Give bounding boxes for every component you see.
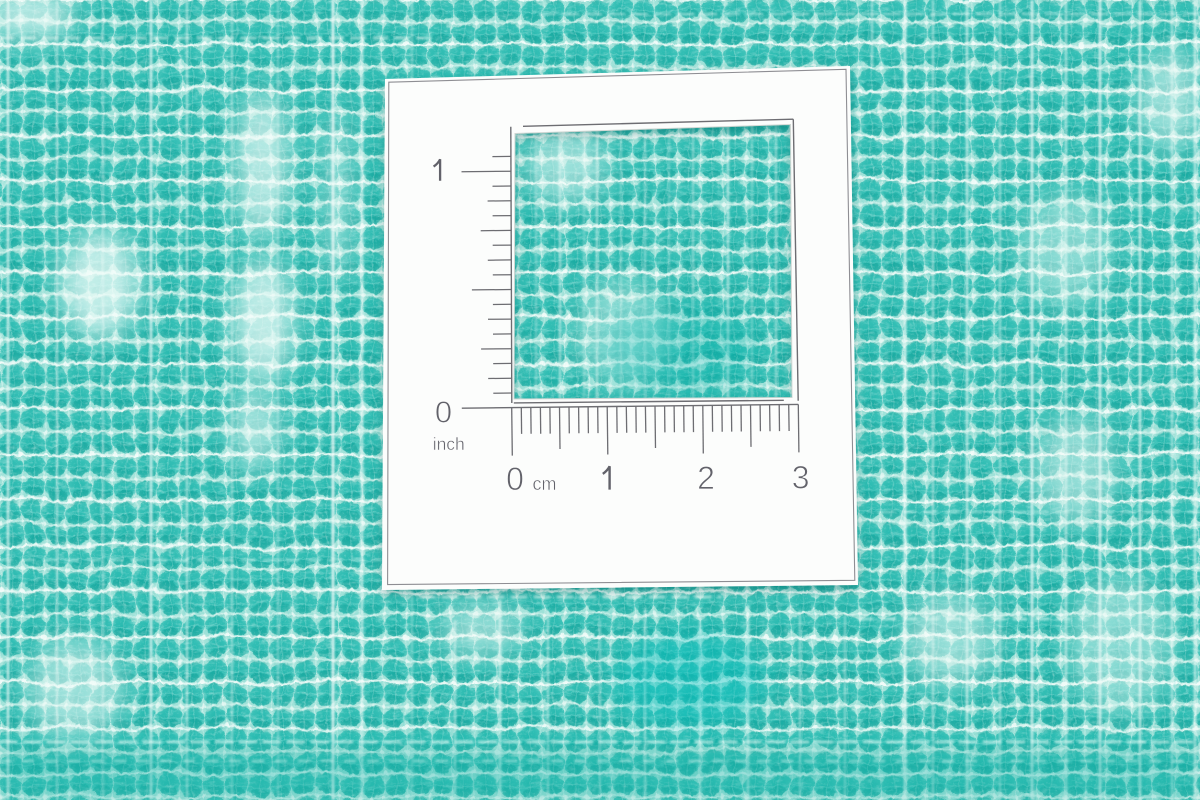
svg-text:0: 0 [435,394,452,429]
svg-text:0: 0 [506,461,524,497]
svg-text:cm: cm [533,474,557,494]
svg-text:3: 3 [792,460,810,496]
svg-text:2: 2 [697,460,715,496]
svg-text:inch: inch [433,434,465,454]
